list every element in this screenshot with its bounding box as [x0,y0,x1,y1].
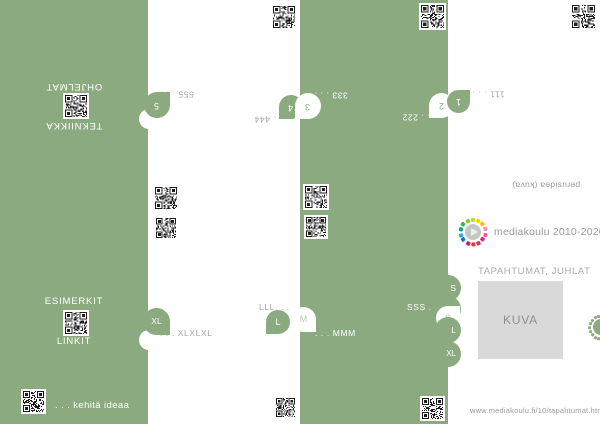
qr-code [153,185,179,211]
tab-bubble-xl-label: XL [151,317,161,326]
footer-url: www.mediakoulu.fi/10/tapahtumat.html [470,407,600,415]
play-icon [471,228,478,236]
caption-perusidea: perusidea (kuva) [512,181,580,190]
qr-code [154,216,178,240]
panel-title-ohjelmat: OHJELMAT [0,81,148,92]
qr-code [303,184,329,210]
qr-code [63,93,89,119]
stack-bump-xl: XL [435,341,461,367]
tab-bubble-m-label: M [300,315,308,324]
logo-ring-square [465,240,471,246]
panel-title-esimerkit: ESIMERKIT [0,296,148,307]
tab-bubble-4-label: 4 [288,103,293,112]
logo-ring-square [458,227,463,232]
qr-code [570,3,597,30]
tab-bubble-m: M [291,307,316,332]
stack-bump-l-label: L [451,325,456,335]
mediakoulu-logo-icon [456,215,490,249]
qr-code [419,3,446,30]
logo-play-circle [465,224,481,240]
note-111: 111 . . . [472,90,505,99]
note-mmm: . . . MMM [315,329,356,338]
qr-code [304,215,328,239]
note-444: . . . 444 [254,115,288,124]
stack-bump-l: L [435,317,461,343]
panel-title-tekniikka: TEKNIIKKA [0,120,148,131]
tab-bubble-5-label: 5 [154,101,159,110]
edge-stamp-square [588,329,592,333]
leaflet-spread: OHJELMAT TEKNIIKKA 5 555 . . . 4 3 333 .… [0,0,600,424]
stack-bump-s-label: S [450,283,456,293]
section-title: TAPAHTUMAT, JUHLAT [478,267,591,277]
qr-code [271,4,297,30]
tab-bubble-l: L [266,310,290,334]
tab-bubble-1-label: 1 [456,97,461,106]
panel-title-linkit: LINKIT [0,336,148,347]
edge-stamp-icon [586,312,600,342]
note-555: 555 . . . [160,90,194,99]
image-placeholder-label: KUVA [503,313,538,327]
tab-bubble-2-label: 2 [439,101,444,110]
logo-ring-square [458,232,463,237]
note-xlxlxl: . . . XLXLXL [160,329,213,338]
qr-code [21,389,46,414]
logo-ring-square [471,242,475,246]
edge-stamp-square [588,326,591,329]
tab-bubble-1: 1 [447,90,470,113]
logo-ring-square [482,227,487,232]
stack-bump-xl-label: XL [446,349,456,358]
tab-bubble-3-label: 3 [305,102,310,111]
footer-idea-text: . . . kehitä ideaa [55,401,129,411]
logo-ring-square [475,240,481,246]
note-333: 333 . . . [314,91,348,100]
image-placeholder-box: KUVA [478,281,563,359]
note-222: . . . 222 [402,113,436,122]
green-panel-middle [300,0,448,424]
qr-code [420,396,445,421]
qr-code [274,396,297,419]
green-panel-left [0,0,148,424]
logo-text: mediakoulu 2010-2020 [494,227,600,238]
qr-code [63,310,89,336]
tab-bubble-l-label: L [275,318,280,327]
